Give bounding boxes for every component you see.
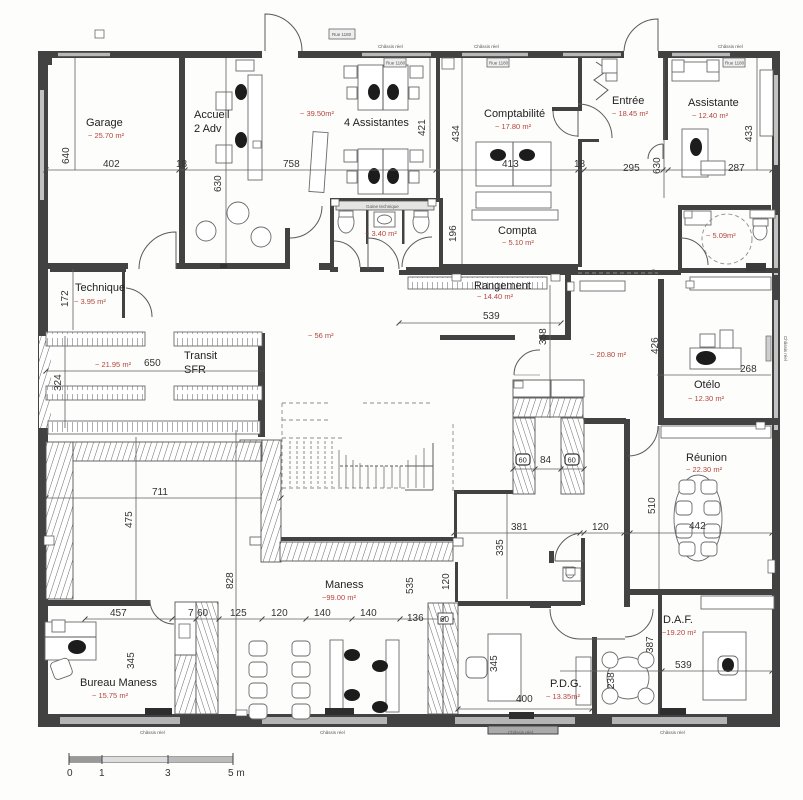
svg-text:7: 7: [188, 608, 194, 619]
svg-text:Rue 1180: Rue 1180: [489, 61, 509, 66]
svg-text:402: 402: [103, 159, 120, 170]
svg-text:120: 120: [271, 608, 288, 619]
svg-text:Châssis réel: Châssis réel: [320, 730, 345, 735]
svg-text:539: 539: [483, 311, 500, 322]
svg-text:136: 136: [407, 613, 424, 624]
svg-text:442: 442: [689, 521, 706, 532]
svg-text:~ 22.30 m²: ~ 22.30 m²: [686, 465, 723, 474]
svg-text:Compta: Compta: [498, 225, 537, 237]
svg-text:Transit: Transit: [184, 350, 217, 362]
svg-text:4 Assistantes: 4 Assistantes: [344, 117, 409, 129]
svg-text:2 Adv: 2 Adv: [194, 123, 222, 135]
svg-text:120: 120: [592, 522, 609, 533]
svg-text:Maness: Maness: [325, 579, 364, 591]
svg-text:~ 5.09m²: ~ 5.09m²: [706, 231, 736, 240]
svg-text:60: 60: [519, 456, 527, 465]
svg-text:650: 650: [144, 358, 161, 369]
svg-text:345: 345: [489, 655, 500, 672]
svg-text:~ 17.80 m²: ~ 17.80 m²: [495, 122, 532, 131]
svg-text:120: 120: [441, 573, 452, 590]
svg-text:84: 84: [540, 455, 552, 466]
svg-text:345: 345: [126, 652, 137, 669]
svg-text:~ 12.30 m²: ~ 12.30 m²: [688, 394, 725, 403]
svg-text:140: 140: [360, 608, 377, 619]
svg-text:5 m: 5 m: [228, 768, 245, 779]
svg-text:~ 3.40 m²: ~ 3.40 m²: [365, 229, 397, 238]
svg-text:Châssis réel: Châssis réel: [508, 730, 533, 735]
svg-text:640: 640: [61, 147, 72, 164]
svg-text:Châssis réel: Châssis réel: [140, 730, 165, 735]
svg-text:Rue 1180: Rue 1180: [725, 61, 745, 66]
svg-text:238: 238: [606, 672, 617, 689]
svg-text:433: 433: [744, 125, 755, 142]
svg-text:~ 20.80 m²: ~ 20.80 m²: [590, 350, 627, 359]
svg-text:60: 60: [197, 608, 209, 619]
svg-text:Châssis réel: Châssis réel: [474, 44, 499, 49]
svg-text:3: 3: [165, 768, 171, 779]
svg-text:~ 25.70 m²: ~ 25.70 m²: [88, 131, 125, 140]
svg-text:Otélo: Otélo: [694, 379, 720, 391]
svg-text:381: 381: [511, 522, 528, 533]
svg-text:0: 0: [67, 768, 73, 779]
svg-text:~ 14.40 m²: ~ 14.40 m²: [477, 292, 514, 301]
svg-text:324: 324: [53, 374, 64, 391]
svg-text:Rue 1180: Rue 1180: [386, 61, 406, 66]
svg-text:535: 535: [405, 577, 416, 594]
svg-text:Entrée: Entrée: [612, 95, 644, 107]
svg-text:19: 19: [651, 268, 656, 274]
svg-text:Châssis réel: Châssis réel: [718, 44, 743, 49]
svg-text:539: 539: [675, 660, 692, 671]
svg-text:387: 387: [645, 636, 656, 653]
svg-text:~ 39.50m²: ~ 39.50m²: [300, 109, 334, 118]
svg-text:125: 125: [230, 608, 247, 619]
svg-text:~99.00 m²: ~99.00 m²: [322, 593, 356, 602]
svg-text:~ 5.10 m²: ~ 5.10 m²: [502, 238, 534, 247]
svg-text:758: 758: [283, 159, 300, 170]
svg-text:Rue 1180: Rue 1180: [332, 32, 352, 37]
svg-text:475: 475: [124, 511, 135, 528]
svg-text:630: 630: [213, 175, 224, 192]
svg-text:~ 56 m²: ~ 56 m²: [308, 331, 334, 340]
svg-text:Châssis réel: Châssis réel: [378, 44, 403, 49]
svg-text:413: 413: [502, 159, 519, 170]
svg-text:P.D.G.: P.D.G.: [550, 678, 582, 690]
svg-text:Garage: Garage: [86, 117, 123, 129]
svg-text:335: 335: [495, 539, 506, 556]
svg-text:Technique: Technique: [75, 282, 125, 294]
svg-text:18: 18: [176, 159, 188, 170]
svg-text:510: 510: [647, 497, 658, 514]
svg-text:140: 140: [314, 608, 331, 619]
svg-text:Rangement: Rangement: [474, 280, 531, 292]
svg-text:426: 426: [650, 337, 661, 354]
svg-text:~ 21.95 m²: ~ 21.95 m²: [95, 360, 132, 369]
svg-text:D.A.F.: D.A.F.: [663, 614, 693, 626]
svg-text:287: 287: [728, 163, 745, 174]
svg-text:Châssis réel: Châssis réel: [660, 730, 685, 735]
svg-text:196: 196: [448, 225, 459, 242]
svg-text:Châssis réel: Châssis réel: [783, 336, 788, 361]
svg-text:Gaine technique: Gaine technique: [366, 204, 399, 209]
svg-text:457: 457: [110, 608, 127, 619]
svg-text:268: 268: [740, 364, 757, 375]
svg-text:Comptabilité: Comptabilité: [484, 108, 545, 120]
svg-text:828: 828: [225, 572, 236, 589]
svg-text:1: 1: [99, 768, 105, 779]
svg-text:~ 18.45 m²: ~ 18.45 m²: [612, 109, 649, 118]
svg-text:Bureau Maness: Bureau Maness: [80, 677, 158, 689]
svg-text:~ 3.95 m²: ~ 3.95 m²: [74, 297, 106, 306]
svg-text:172: 172: [60, 290, 71, 307]
svg-text:434: 434: [451, 125, 462, 142]
svg-text:~19.20 m²: ~19.20 m²: [662, 628, 696, 637]
svg-text:358: 358: [538, 328, 549, 345]
svg-text:~ 13.35m²: ~ 13.35m²: [546, 692, 580, 701]
svg-text:295: 295: [623, 163, 640, 174]
svg-text:~ 12.40 m²: ~ 12.40 m²: [692, 111, 729, 120]
svg-text:SFR: SFR: [184, 364, 206, 376]
svg-text:60: 60: [440, 615, 449, 624]
svg-text:400: 400: [516, 694, 533, 705]
svg-text:Assistante: Assistante: [688, 97, 739, 109]
svg-text:421: 421: [417, 119, 428, 136]
svg-text:711: 711: [152, 487, 168, 498]
svg-text:Accueil: Accueil: [194, 109, 229, 121]
svg-text:60: 60: [568, 456, 576, 465]
svg-text:Réunion: Réunion: [686, 452, 727, 464]
svg-text:~ 15.75 m²: ~ 15.75 m²: [92, 691, 129, 700]
